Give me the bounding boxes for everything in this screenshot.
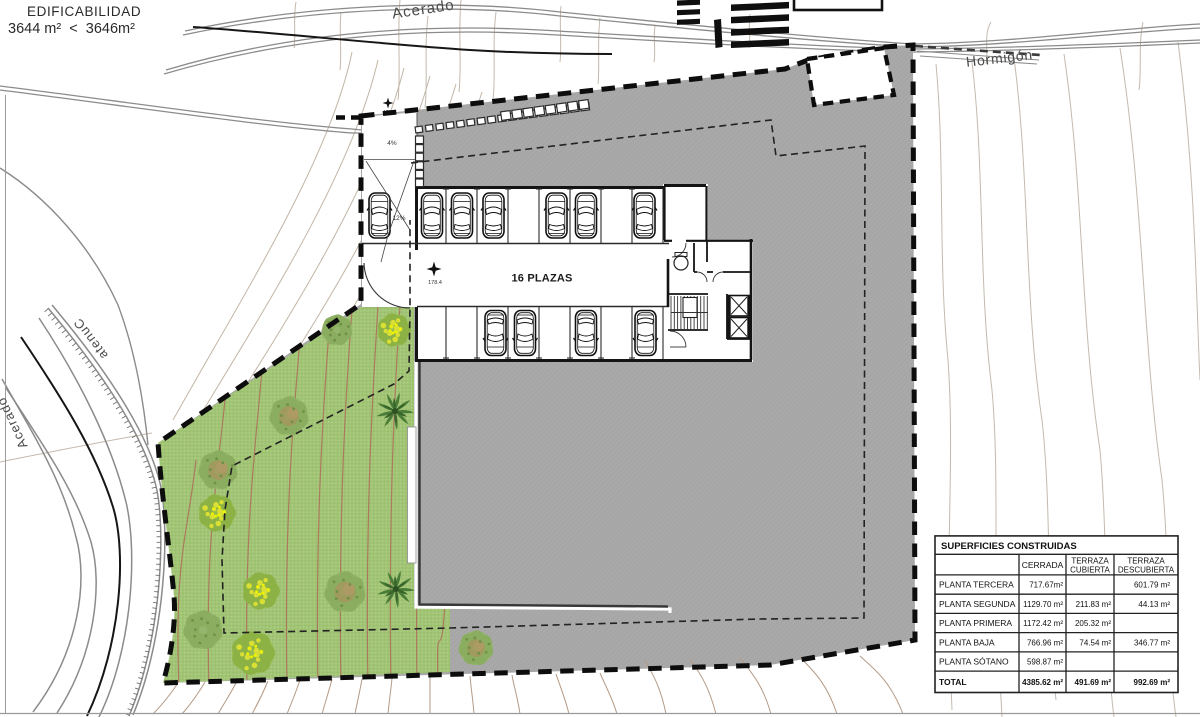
svg-text:12%: 12%: [392, 215, 405, 222]
svg-text:CERRADA: CERRADA: [1022, 560, 1064, 570]
svg-text:4%: 4%: [387, 140, 397, 147]
svg-text:601.79 m²: 601.79 m²: [1134, 581, 1170, 590]
svg-text:992.69 m²: 992.69 m²: [1134, 678, 1171, 687]
svg-text:PLANTA PRIMERA: PLANTA PRIMERA: [939, 618, 1012, 628]
svg-text:4385.62 m²: 4385.62 m²: [1022, 678, 1063, 687]
svg-text:598.87 m²: 598.87 m²: [1027, 658, 1063, 667]
svg-text:205.32 m²: 205.32 m²: [1075, 619, 1111, 628]
svg-text:1172.42 m²: 1172.42 m²: [1023, 619, 1063, 628]
svg-text:717.67m²: 717.67m²: [1029, 581, 1063, 590]
svg-text:3644 m² < 3646m²: 3644 m² < 3646m²: [8, 21, 135, 37]
svg-text:PLANTA BAJA: PLANTA BAJA: [939, 637, 995, 647]
svg-text:211.83 m²: 211.83 m²: [1076, 600, 1112, 609]
svg-text:PLANTA TERCERA: PLANTA TERCERA: [939, 580, 1014, 590]
svg-text:44.13 m²: 44.13 m²: [1138, 600, 1170, 609]
svg-text:EDIFICABILIDAD: EDIFICABILIDAD: [27, 4, 141, 19]
svg-text:TERRAZA: TERRAZA: [1127, 557, 1165, 566]
svg-text:74.54 m²: 74.54 m²: [1079, 638, 1111, 647]
svg-text:766.96 m²: 766.96 m²: [1027, 638, 1063, 647]
svg-text:346.77 m²: 346.77 m²: [1134, 638, 1170, 647]
svg-text:DESCUBIERTA: DESCUBIERTA: [1118, 566, 1175, 575]
svg-text:16 PLAZAS: 16 PLAZAS: [511, 273, 572, 285]
svg-text:TOTAL: TOTAL: [939, 677, 967, 687]
svg-text:PLANTA SÓTANO: PLANTA SÓTANO: [939, 657, 1009, 667]
svg-text:CUBIERTA: CUBIERTA: [1070, 566, 1110, 575]
svg-text:PLANTA SEGUNDA: PLANTA SEGUNDA: [939, 599, 1016, 609]
svg-text:178.4: 178.4: [428, 280, 442, 286]
svg-text:1129.70 m²: 1129.70 m²: [1023, 600, 1063, 609]
svg-text:491.69 m²: 491.69 m²: [1075, 678, 1112, 687]
svg-text:SUPERFICIES CONSTRUIDAS: SUPERFICIES CONSTRUIDAS: [941, 541, 1077, 552]
svg-text:TERRAZA: TERRAZA: [1071, 557, 1109, 566]
